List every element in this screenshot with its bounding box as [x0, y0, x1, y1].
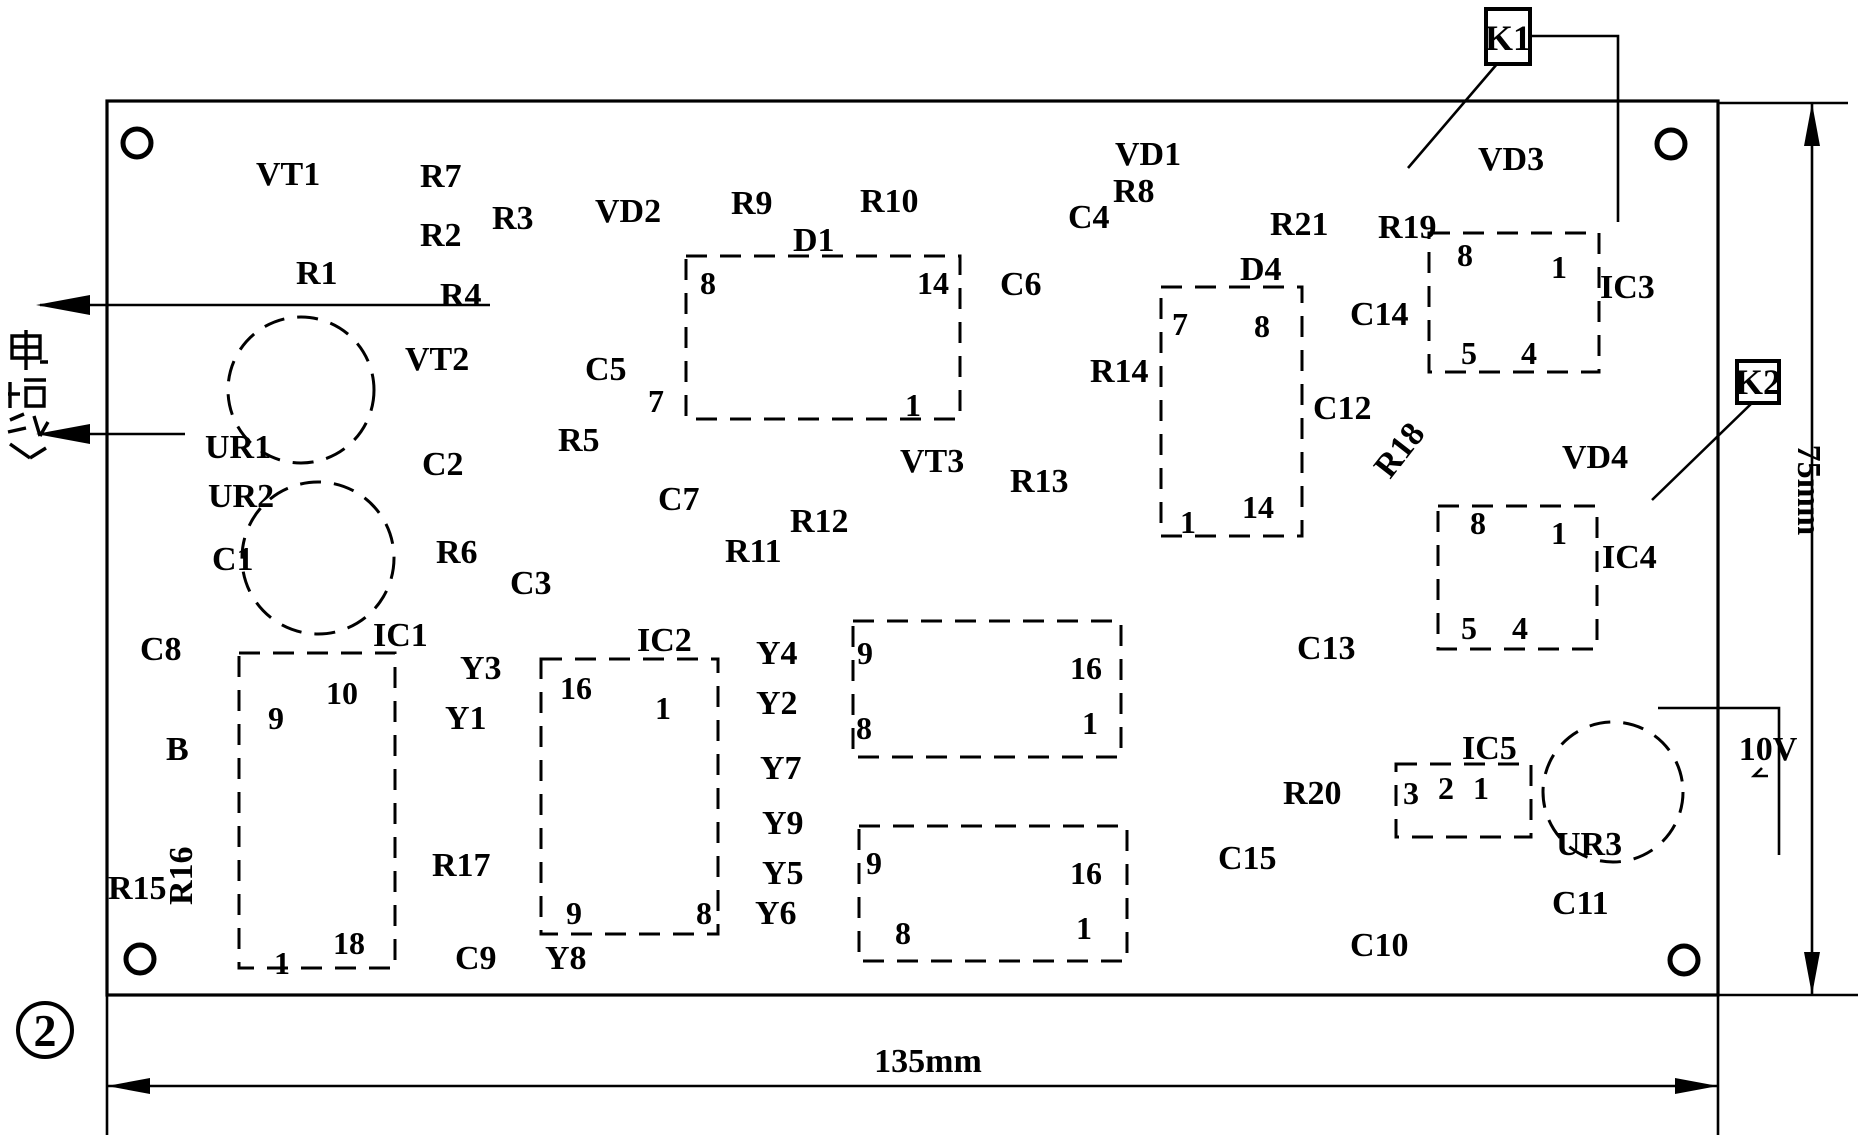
svg-text:7: 7 [648, 383, 664, 419]
svg-text:C14: C14 [1350, 296, 1409, 333]
svg-text:C8: C8 [140, 631, 182, 668]
svg-text:1: 1 [1076, 910, 1092, 946]
svg-text:1: 1 [1180, 504, 1196, 540]
svg-text:R5: R5 [558, 422, 600, 459]
svg-text:IC3: IC3 [1600, 269, 1655, 306]
svg-text:9: 9 [857, 635, 873, 671]
svg-text:C2: C2 [422, 446, 464, 483]
svg-text:C4: C4 [1068, 199, 1110, 236]
svg-text:9: 9 [268, 700, 284, 736]
svg-text:Y8: Y8 [545, 940, 587, 977]
svg-text:1: 1 [1551, 249, 1567, 285]
svg-text:C9: C9 [455, 940, 497, 977]
svg-text:C10: C10 [1350, 927, 1409, 964]
svg-text:VD1: VD1 [1115, 136, 1181, 173]
svg-text:UR1: UR1 [205, 429, 271, 466]
svg-text:135mm: 135mm [874, 1043, 982, 1080]
svg-text:R7: R7 [420, 158, 462, 195]
svg-text:R14: R14 [1090, 353, 1149, 390]
svg-text:D4: D4 [1240, 251, 1282, 288]
svg-text:VD4: VD4 [1562, 439, 1628, 476]
svg-text:Y7: Y7 [760, 750, 802, 787]
svg-text:UR3: UR3 [1556, 826, 1622, 863]
svg-text:IC4: IC4 [1602, 539, 1657, 576]
svg-text:9: 9 [566, 895, 582, 931]
svg-text:16: 16 [560, 670, 592, 706]
svg-text:7: 7 [1172, 306, 1188, 342]
svg-text:75mm: 75mm [1790, 445, 1827, 536]
svg-text:R2: R2 [420, 217, 462, 254]
svg-text:1: 1 [1551, 515, 1567, 551]
svg-text:14: 14 [917, 265, 949, 301]
svg-text:VD3: VD3 [1478, 141, 1544, 178]
svg-text:1: 1 [905, 387, 921, 423]
svg-text:C3: C3 [510, 565, 552, 602]
svg-text:C11: C11 [1552, 885, 1609, 922]
svg-text:R10: R10 [860, 183, 919, 220]
svg-text:18: 18 [333, 925, 365, 961]
svg-text:8: 8 [700, 265, 716, 301]
svg-text:Y6: Y6 [755, 895, 797, 932]
svg-text:R15: R15 [108, 870, 167, 907]
svg-text:R12: R12 [790, 503, 849, 540]
svg-text:9: 9 [866, 845, 882, 881]
svg-text:8: 8 [1457, 237, 1473, 273]
svg-text:1: 1 [274, 945, 290, 981]
svg-text:UR2: UR2 [208, 478, 274, 515]
svg-text:R13: R13 [1010, 463, 1069, 500]
svg-text:8: 8 [856, 710, 872, 746]
svg-text:14: 14 [1242, 489, 1274, 525]
svg-text:C5: C5 [585, 351, 627, 388]
svg-text:R11: R11 [725, 533, 782, 570]
svg-text:1: 1 [1082, 705, 1098, 741]
svg-text:5: 5 [1461, 610, 1477, 646]
svg-text:16: 16 [1070, 855, 1102, 891]
svg-text:IC1: IC1 [373, 617, 428, 654]
svg-text:C13: C13 [1297, 630, 1356, 667]
svg-text:R8: R8 [1113, 173, 1155, 210]
svg-text:IC2: IC2 [637, 622, 692, 659]
svg-text:C7: C7 [658, 481, 700, 518]
svg-text:Y5: Y5 [762, 855, 804, 892]
svg-text:D1: D1 [793, 222, 835, 259]
svg-text:Y1: Y1 [445, 700, 487, 737]
svg-text:4: 4 [1521, 335, 1537, 371]
svg-text:IC5: IC5 [1462, 730, 1517, 767]
svg-text:8: 8 [895, 915, 911, 951]
svg-text:C6: C6 [1000, 266, 1042, 303]
svg-text:Y2: Y2 [756, 685, 798, 722]
svg-text:2: 2 [34, 1005, 57, 1056]
svg-text:R21: R21 [1270, 206, 1329, 243]
svg-text:R9: R9 [731, 185, 773, 222]
svg-text:VD2: VD2 [595, 193, 661, 230]
svg-text:1: 1 [655, 690, 671, 726]
svg-text:Y4: Y4 [756, 635, 798, 672]
svg-text:VT2: VT2 [405, 341, 469, 378]
svg-text:C15: C15 [1218, 840, 1277, 877]
svg-text:5: 5 [1461, 335, 1477, 371]
svg-text:10: 10 [326, 675, 358, 711]
svg-text:R3: R3 [492, 200, 534, 237]
svg-text:R16: R16 [163, 846, 200, 905]
svg-text:R6: R6 [436, 534, 478, 571]
svg-text:R4: R4 [440, 277, 482, 314]
svg-text:8: 8 [696, 895, 712, 931]
svg-text:K2: K2 [1735, 362, 1781, 402]
svg-text:Y9: Y9 [762, 805, 804, 842]
svg-text:R20: R20 [1283, 775, 1342, 812]
svg-text:C12: C12 [1313, 390, 1372, 427]
svg-text:10V: 10V [1739, 731, 1798, 768]
svg-text:R19: R19 [1378, 209, 1437, 246]
svg-text:1: 1 [1473, 770, 1489, 806]
svg-text:R17: R17 [432, 847, 491, 884]
svg-text:VT3: VT3 [900, 443, 964, 480]
svg-text:Y3: Y3 [460, 650, 502, 687]
svg-text:8: 8 [1254, 308, 1270, 344]
svg-text:2: 2 [1438, 770, 1454, 806]
svg-text:3: 3 [1403, 775, 1419, 811]
svg-text:R1: R1 [296, 255, 338, 292]
svg-text:8: 8 [1470, 505, 1486, 541]
svg-text:K1: K1 [1485, 18, 1531, 58]
svg-text:B: B [166, 731, 189, 768]
svg-text:16: 16 [1070, 650, 1102, 686]
svg-text:VT1: VT1 [256, 156, 320, 193]
svg-text:4: 4 [1512, 610, 1528, 646]
svg-text:C1: C1 [212, 541, 254, 578]
